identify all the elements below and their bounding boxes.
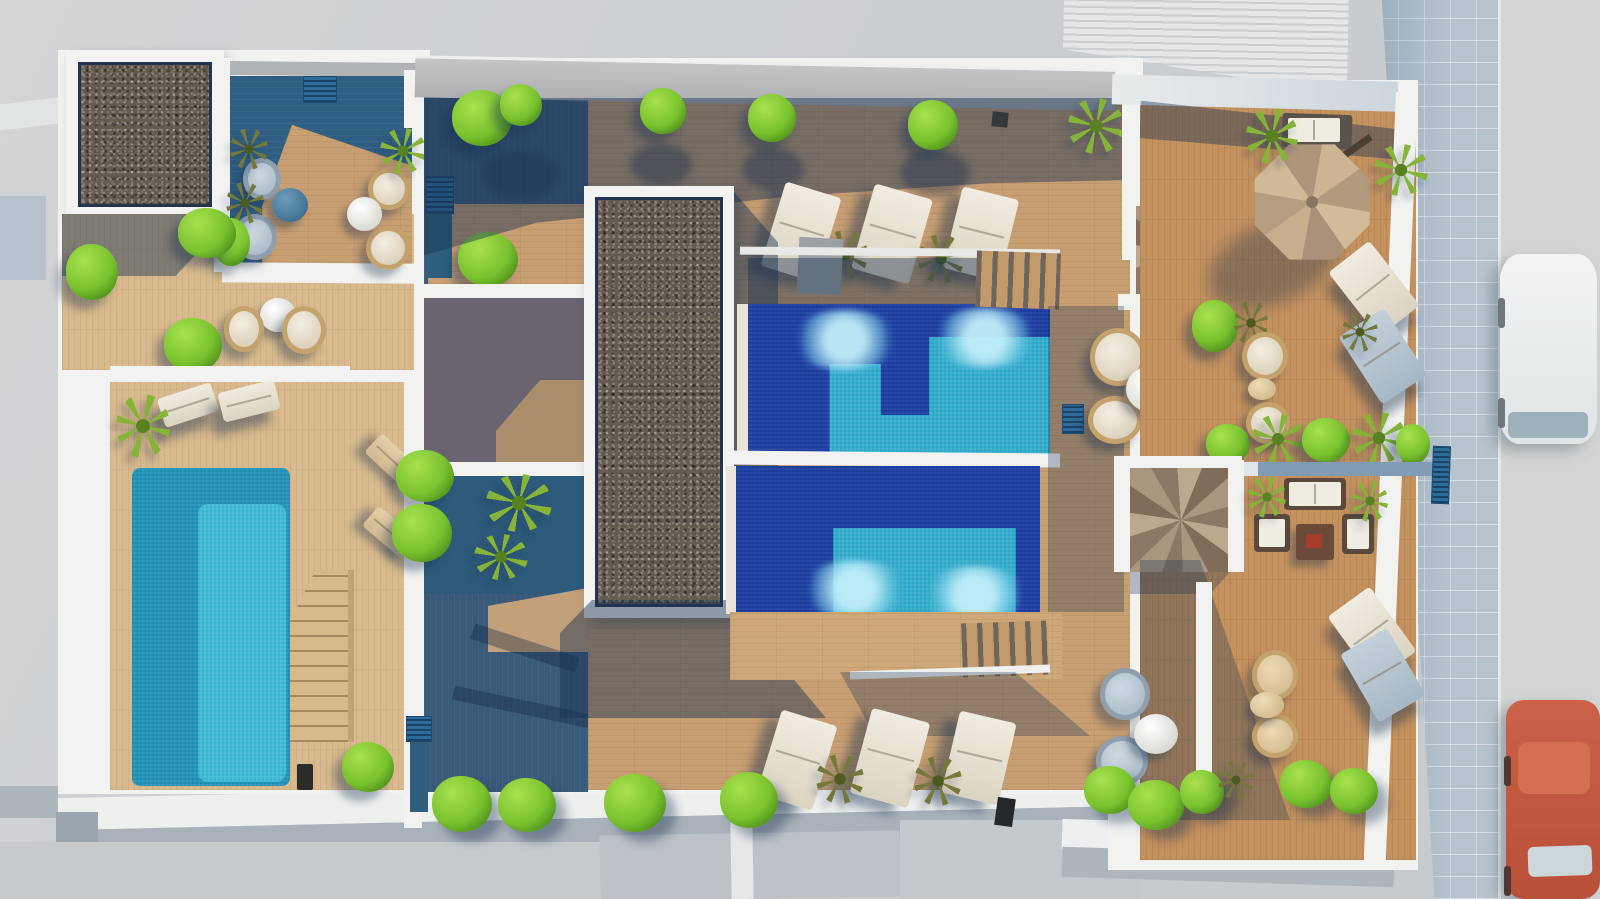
coffee-table-tray: [1306, 534, 1322, 548]
hedge-palm: [1252, 414, 1304, 464]
lower-divider-wall: [1196, 582, 1212, 796]
palm-plant: [1248, 476, 1286, 518]
ball-bush: [720, 772, 778, 828]
hanging-chair: [282, 306, 326, 354]
ball-bush: [640, 88, 686, 134]
pavement-band-left-lower: [0, 786, 58, 818]
red-car-wheel-front: [1504, 756, 1511, 786]
stairwell-a-wall-top: [424, 284, 588, 298]
ball-bush: [908, 100, 958, 150]
pool-light-jet: [800, 560, 910, 618]
ball-bush: [500, 84, 542, 126]
vent-grate-terrace-a: [303, 76, 337, 103]
umbrella-hub: [1306, 196, 1318, 208]
ball-bush: [342, 742, 394, 792]
ball-bush: [604, 774, 666, 832]
terrace-a-gray-ledge: [230, 61, 416, 77]
side-table-white: [347, 197, 382, 231]
pool-stairs-upper: [975, 251, 1061, 310]
spiral-staircase-2: [1130, 468, 1228, 572]
private-pool-shallow-shelf: [198, 504, 286, 782]
ground-white-sliver: [730, 822, 753, 899]
palm-plant: [486, 474, 552, 532]
gravel-bed: [598, 200, 720, 604]
sofa-cushions: [1289, 482, 1341, 506]
side-table-beige: [1250, 692, 1284, 718]
white-car-wheel-rear: [1498, 398, 1505, 428]
vent-grate-lower: [406, 716, 432, 742]
pool-faucet: [297, 764, 313, 790]
hanging-chair: [1100, 668, 1150, 720]
palm-plant: [1068, 98, 1124, 154]
spiral-stair-2-wall-top: [1114, 456, 1242, 468]
trash-bin: [994, 797, 1016, 827]
ball-bush: [164, 318, 222, 372]
hanging-chair: [224, 306, 264, 352]
rooftop-aerial-render: [0, 0, 1600, 899]
pool-upper-coping-left: [737, 304, 748, 454]
red-car-windshield: [1527, 845, 1592, 877]
ball-bush: [178, 208, 236, 258]
palm-plant: [380, 128, 426, 174]
spiral-stair-2-wall-left: [1114, 456, 1130, 572]
ball-bush: [748, 94, 796, 142]
palm-plant-dark: [1218, 760, 1254, 800]
white-car-wheel-front: [1498, 298, 1505, 328]
hedge-bush: [1330, 768, 1378, 814]
ball-bush: [432, 776, 492, 832]
palm-plant-dark: [1342, 312, 1378, 352]
red-car-wheel-rear: [1504, 866, 1511, 896]
palm-plant: [116, 394, 170, 458]
palm-plant: [1352, 480, 1388, 522]
armchair-cushion: [1347, 519, 1369, 549]
armchair-cushion: [1259, 519, 1285, 547]
ball-bush: [1192, 300, 1238, 352]
white-car-windshield: [1508, 412, 1588, 438]
hanging-chair: [1242, 332, 1288, 380]
pool-light-jet: [930, 308, 1040, 368]
ball-bush: [498, 778, 556, 832]
wall-speaker-box: [991, 111, 1008, 128]
side-table-beige: [1248, 378, 1276, 400]
pavement-band-left: [0, 196, 46, 280]
side-table-shaded: [272, 188, 308, 222]
hedge-bush: [1280, 760, 1332, 808]
hanging-chair-beige: [1252, 714, 1298, 758]
palm-plant-dark: [816, 754, 864, 804]
side-table-white: [1134, 714, 1178, 754]
pool-light-jet: [790, 310, 900, 370]
terrace-b-wall-bottom: [110, 366, 350, 382]
spiral-stair-2-wall-right: [1228, 460, 1244, 572]
gravel-planter-bed: [81, 65, 209, 204]
ball-bush: [396, 450, 454, 502]
vent-shadow-strip-lower: [410, 742, 428, 812]
bush-shadow: [900, 150, 970, 196]
palm-plant: [1374, 144, 1428, 196]
pool-walkway: [728, 451, 1060, 468]
palm-plant-dark: [914, 756, 962, 806]
pool-lower-coping-left: [726, 466, 736, 614]
hedge-bush: [1302, 418, 1350, 462]
pool-equipment-grate: [1062, 404, 1084, 434]
ball-bush: [392, 504, 452, 562]
hanging-chair: [366, 226, 410, 270]
red-car-roof: [1518, 742, 1590, 794]
ball-bush: [66, 244, 118, 300]
bush-shadow: [630, 144, 692, 186]
hedge-bush: [1396, 424, 1430, 464]
sidewalk-blue-bench: [1431, 446, 1451, 505]
palm-plant-dark: [230, 128, 268, 170]
hedge-bush: [1128, 780, 1184, 830]
bush-shadow: [482, 150, 558, 200]
palm-plant: [474, 534, 528, 580]
palm-plant: [1246, 108, 1298, 164]
